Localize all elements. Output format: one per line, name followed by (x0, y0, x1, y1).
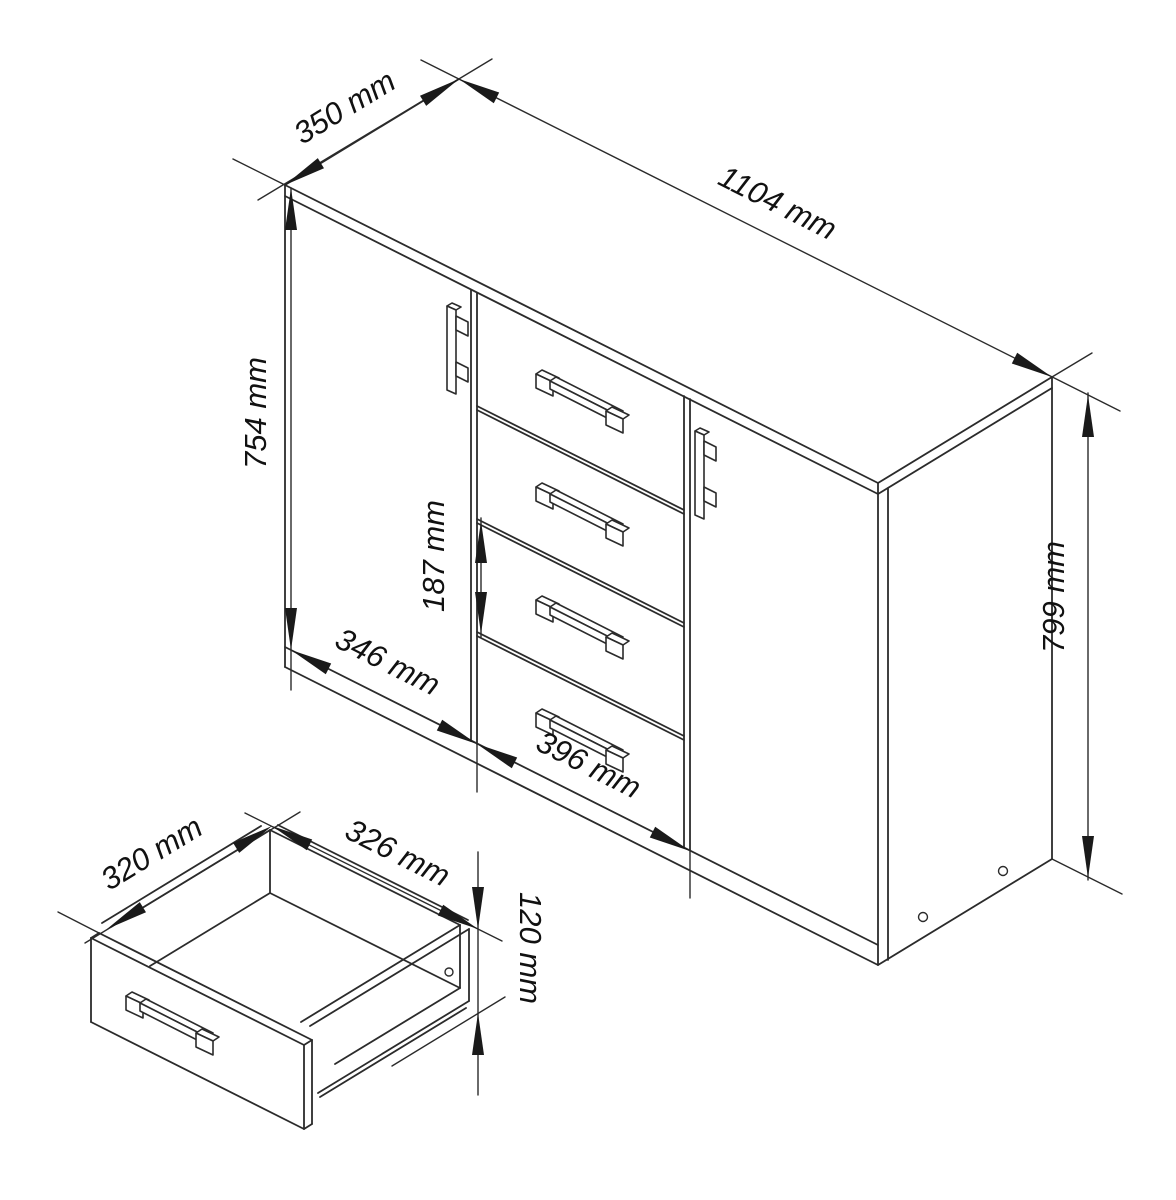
dim-door-height-label: 754 mm (238, 357, 273, 469)
drawer-handle (536, 596, 629, 659)
drawer-handle (536, 370, 629, 433)
dim-drawer-inner-width-label: 326 mm (340, 812, 456, 894)
dim-left-door-width-label: 346 mm (330, 621, 446, 703)
drawer-handle (126, 992, 219, 1055)
dim-drawer-inner-height-label: 120 mm (513, 892, 548, 1004)
cabinet-top-face (285, 79, 1052, 494)
right-side-panel (878, 377, 1052, 965)
dim-depth-label: 350 mm (288, 63, 402, 151)
assembly-hole (999, 867, 1008, 876)
left-door-handle (447, 303, 468, 394)
furniture-dimension-drawing: 350 mm 1104 mm 754 mm 187 mm 346 mm 396 … (0, 0, 1176, 1200)
drawer-handle (536, 483, 629, 546)
dim-width-label: 1104 mm (713, 158, 842, 246)
right-door-handle (695, 428, 716, 519)
dim-drawer-inner-depth-label: 320 mm (95, 809, 209, 897)
dim-drawer-front-height-label: 187 mm (416, 500, 451, 612)
dimension-lines-cabinet (233, 59, 1122, 898)
dim-total-height-label: 799 mm (1036, 541, 1071, 653)
assembly-hole (919, 913, 928, 922)
dimension-labels: 350 mm 1104 mm 754 mm 187 mm 346 mm 396 … (95, 63, 1071, 1004)
drawer-hole (445, 968, 453, 976)
